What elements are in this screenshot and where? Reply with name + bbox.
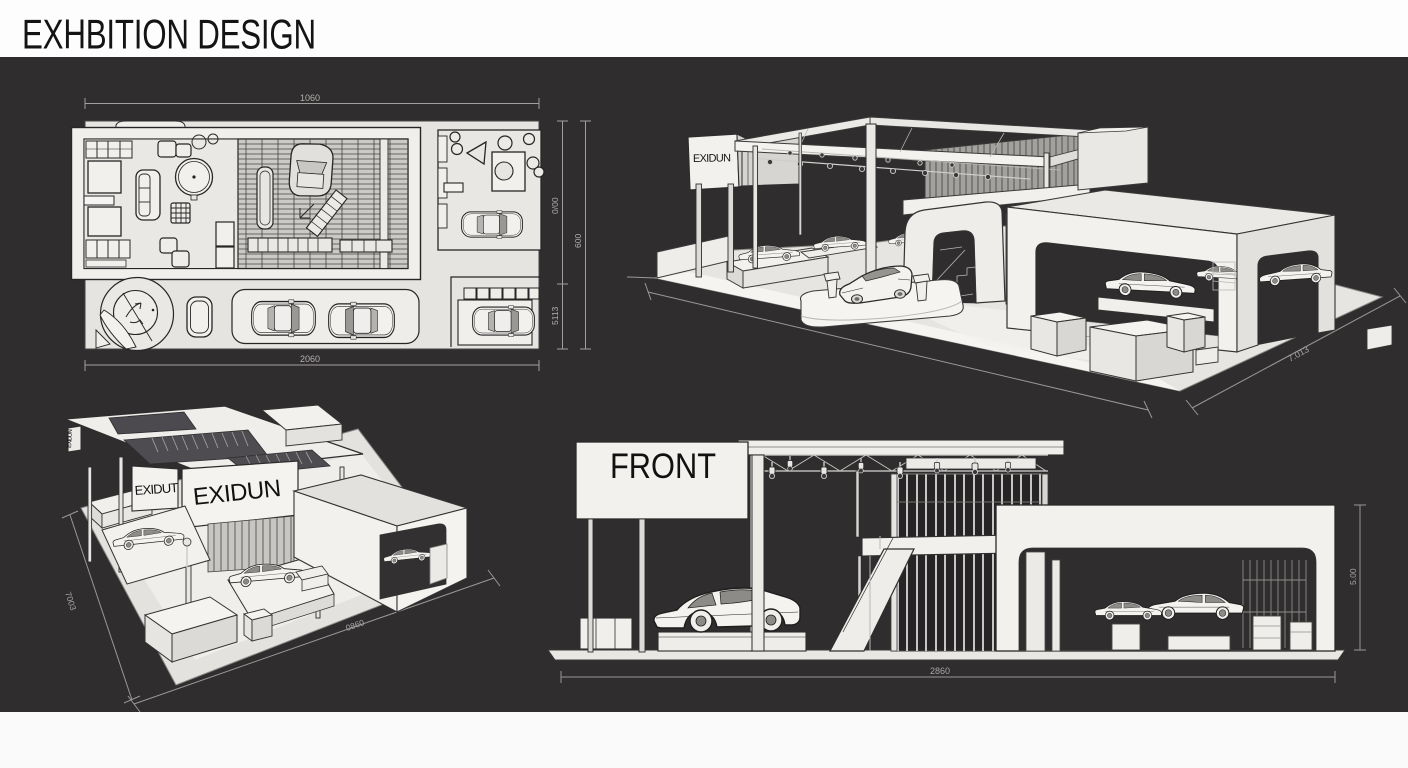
svg-text:1060: 1060 xyxy=(300,93,320,103)
svg-text:FRONT: FRONT xyxy=(610,446,716,485)
svg-text:2860: 2860 xyxy=(930,666,950,676)
svg-text:5113: 5113 xyxy=(550,306,560,325)
svg-text:2060: 2060 xyxy=(300,354,320,364)
svg-text:0/00: 0/00 xyxy=(550,197,560,214)
svg-text:EXIDUN: EXIDUN xyxy=(693,152,731,165)
svg-text:5.00: 5.00 xyxy=(1348,568,1358,585)
svg-text:EXIDUN: EXIDUN xyxy=(67,429,74,448)
svg-text:EXIDUT: EXIDUT xyxy=(134,480,179,498)
svg-text:600: 600 xyxy=(573,234,583,248)
svg-text:EXHBITION DESIGN: EXHBITION DESIGN xyxy=(22,11,316,57)
